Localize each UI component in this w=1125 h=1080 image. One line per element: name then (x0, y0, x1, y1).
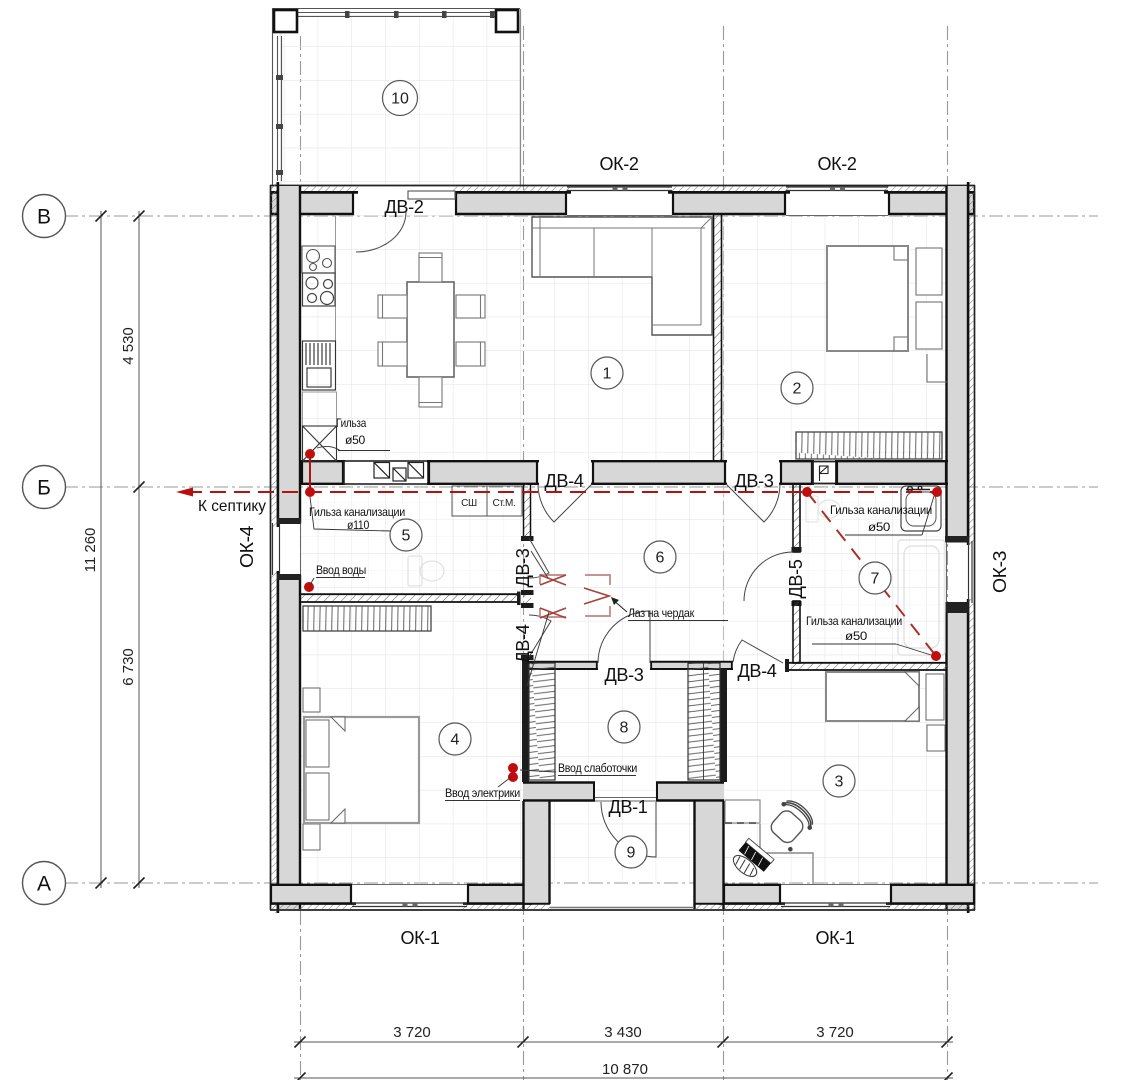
svg-text:7: 7 (871, 571, 880, 588)
svg-text:10 870: 10 870 (602, 1061, 648, 1078)
svg-text:3 720: 3 720 (816, 1024, 854, 1041)
svg-text:ОК-3: ОК-3 (989, 551, 1010, 593)
svg-text:ОК-4: ОК-4 (236, 526, 257, 568)
svg-text:ДВ-3: ДВ-3 (512, 548, 533, 587)
svg-text:ОК-2: ОК-2 (600, 153, 639, 174)
svg-text:А: А (37, 873, 51, 896)
svg-text:4: 4 (451, 732, 460, 749)
svg-text:ДВ-3: ДВ-3 (735, 470, 774, 491)
svg-text:ОК-1: ОК-1 (401, 927, 440, 948)
svg-text:ДВ-4: ДВ-4 (512, 624, 533, 663)
svg-text:ДВ-3: ДВ-3 (605, 664, 644, 685)
svg-text:Б: Б (37, 477, 51, 500)
svg-text:ø110: ø110 (347, 518, 370, 532)
svg-text:СШ: СШ (461, 498, 477, 509)
svg-text:10: 10 (391, 91, 409, 108)
svg-text:9: 9 (627, 845, 636, 862)
svg-text:Гильза канализации: Гильза канализации (309, 505, 405, 519)
svg-text:Ввод слаботочки: Ввод слаботочки (558, 761, 637, 775)
svg-text:Ввод воды: Ввод воды (316, 563, 366, 577)
svg-text:ø50: ø50 (868, 520, 891, 534)
svg-text:ДВ-2: ДВ-2 (385, 196, 424, 217)
svg-text:Ввод электрики: Ввод электрики (445, 786, 520, 800)
svg-text:Ст.М.: Ст.М. (492, 498, 515, 509)
svg-text:К септику: К септику (198, 498, 266, 515)
svg-text:1: 1 (603, 366, 612, 383)
svg-text:Гильза канализации: Гильза канализации (806, 614, 902, 628)
svg-text:Лаз на чердак: Лаз на чердак (628, 606, 695, 620)
svg-text:ДВ-4: ДВ-4 (545, 470, 584, 491)
svg-text:ø50: ø50 (845, 629, 868, 643)
svg-text:3 430: 3 430 (604, 1024, 642, 1041)
svg-text:3: 3 (835, 774, 844, 791)
svg-text:ДВ-1: ДВ-1 (609, 796, 648, 817)
svg-text:2: 2 (793, 381, 802, 398)
svg-text:В: В (37, 206, 51, 229)
svg-text:3 720: 3 720 (393, 1024, 431, 1041)
svg-text:11 260: 11 260 (82, 528, 99, 573)
svg-text:ОК-2: ОК-2 (818, 153, 857, 174)
svg-text:6: 6 (656, 550, 665, 567)
svg-text:Гильза канализации: Гильза канализации (830, 503, 932, 517)
svg-text:5: 5 (402, 528, 411, 545)
svg-text:6 730: 6 730 (120, 648, 137, 686)
svg-text:ОК-1: ОК-1 (816, 927, 855, 948)
svg-text:Гильза: Гильза (336, 416, 367, 430)
svg-text:4 530: 4 530 (120, 327, 137, 365)
svg-text:ДВ-5: ДВ-5 (785, 559, 806, 598)
svg-text:ø50: ø50 (345, 433, 366, 447)
svg-text:8: 8 (620, 720, 629, 737)
svg-text:ДВ-4: ДВ-4 (738, 660, 777, 681)
